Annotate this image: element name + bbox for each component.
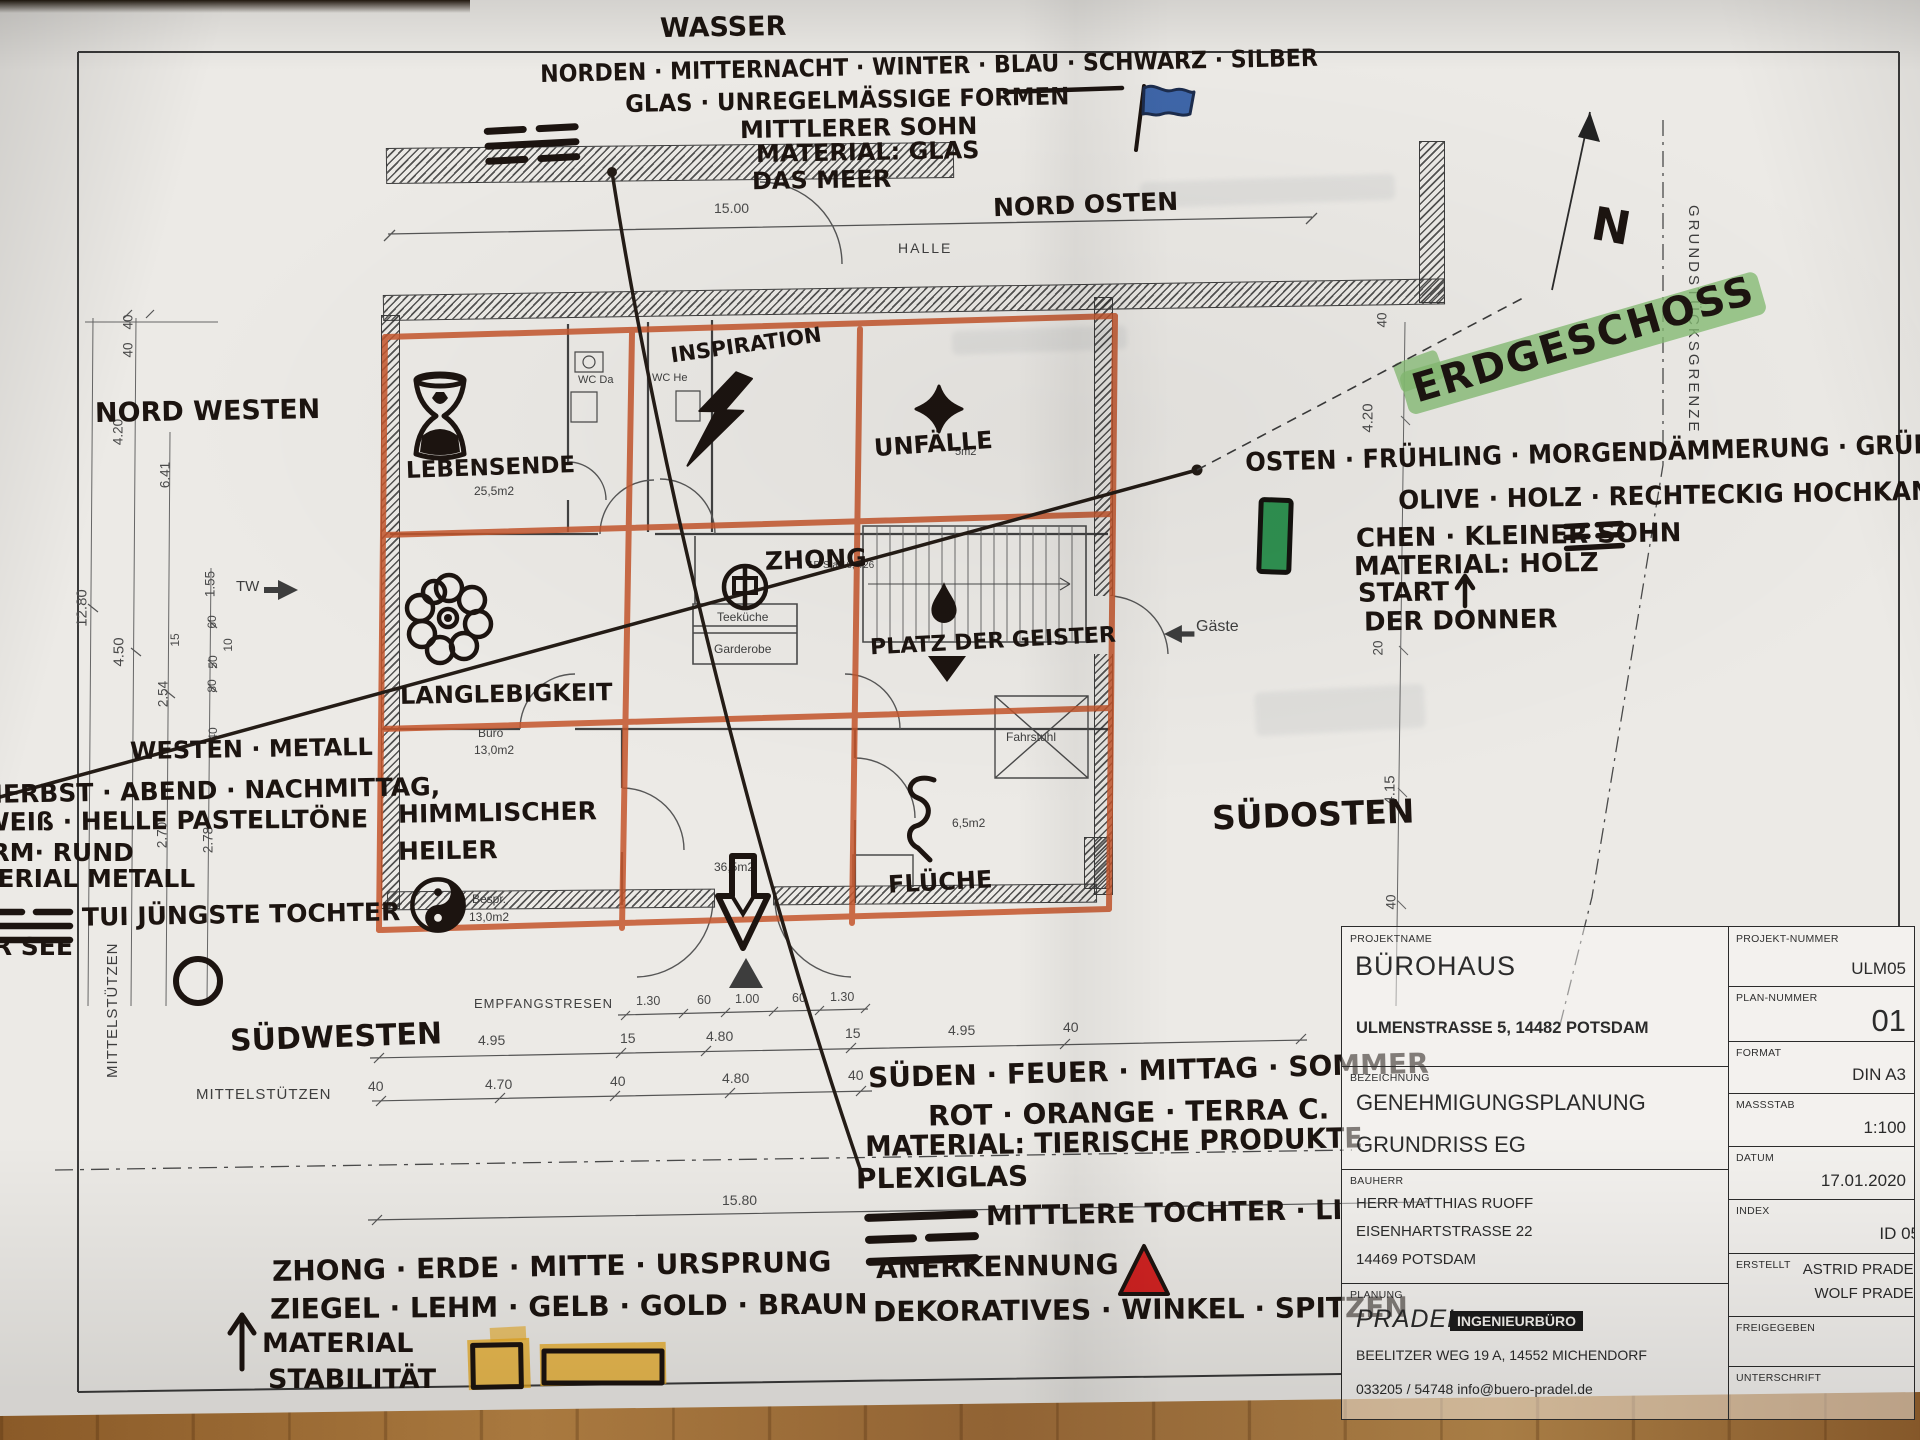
- trigram-dui-icon: [0, 906, 74, 946]
- yellow-squares-icon: [460, 1325, 675, 1400]
- room-hand-flueche: FLÜCHE: [887, 867, 993, 898]
- water-drop-icon: [928, 580, 960, 624]
- sued-osten-label: SÜDOSTEN: [1211, 794, 1415, 836]
- entry-triangle-icon: [729, 958, 763, 988]
- red-triangle-icon: [1118, 1242, 1170, 1298]
- start-arrow-icon: [1452, 568, 1478, 608]
- curse-squiggle-icon: [898, 772, 942, 864]
- row-line: [1728, 1366, 1914, 1367]
- room-hand-himmlischer: HIMMLISCHER: [398, 798, 597, 828]
- room-hand-heiler: HEILER: [398, 837, 498, 865]
- west-line5: MATERIAL METALL: [0, 866, 195, 892]
- zhong-character-icon: [720, 562, 770, 612]
- format-value: DIN A3: [1852, 1065, 1906, 1085]
- row-line: [1342, 1283, 1728, 1284]
- east-line6: DER DONNER: [1364, 606, 1558, 637]
- nord-westen-label: NORD WESTEN: [95, 396, 321, 428]
- center-line3: MATERIAL: [262, 1330, 413, 1358]
- stability-arrow-icon: [222, 1305, 262, 1371]
- circle-icon: [170, 955, 226, 1009]
- room-hand-zhong: ZHONG: [765, 545, 868, 575]
- planung-label: PLANUNG: [1350, 1289, 1403, 1301]
- sued-westen-label: SÜDWESTEN: [230, 1018, 443, 1057]
- row-line: [1728, 1146, 1914, 1147]
- erstellt-value2: WOLF PRADEL: [1814, 1285, 1915, 1302]
- bauherr-line2: EISENHARTSTRASSE 22: [1356, 1223, 1532, 1240]
- row-line: [1728, 1093, 1914, 1094]
- title-block: PROJEKTNAME BÜROHAUS ULMENSTRASSE 5, 144…: [1341, 926, 1915, 1420]
- bauherr-line3: 14469 POTSDAM: [1356, 1251, 1476, 1268]
- massstab-value: 1:100: [1863, 1118, 1906, 1138]
- plan-nummer-label: PLAN-NUMMER: [1736, 992, 1817, 1004]
- erstellt-label: ERSTELLT: [1736, 1259, 1791, 1271]
- west-line6: TUI JÜNGSTE TOCHTER: [82, 899, 401, 931]
- bezeichnung-label: BEZEICHNUNG: [1350, 1072, 1430, 1084]
- row-line: [1728, 1316, 1914, 1317]
- planung-adresse: BEELITZER WEG 19 A, 14552 MICHENDORF: [1356, 1347, 1647, 1363]
- center-line4: STABILITÄT: [268, 1366, 436, 1394]
- center-line2: ZIEGEL · LEHM · GELB · GOLD · BRAUN: [270, 1289, 868, 1324]
- projekt-nummer-label: PROJEKT-NUMMER: [1736, 933, 1839, 945]
- trigram-kan-icon: [484, 122, 580, 166]
- massstab-label: MASSSTAB: [1736, 1099, 1795, 1111]
- lightning-icon: [688, 368, 750, 472]
- hourglass-icon: [408, 368, 472, 466]
- green-rectangle-icon: [1254, 494, 1296, 578]
- row-line: [1728, 986, 1914, 987]
- bezeichnung-value2: GRUNDRISS EG: [1356, 1132, 1526, 1158]
- projekt-nummer-value: ULM05: [1851, 959, 1906, 979]
- east-line5: START: [1358, 579, 1450, 608]
- south-line5: MITTLERE TOCHTER · LI: [986, 1197, 1343, 1232]
- plan-nummer-value: 01: [1872, 1003, 1906, 1039]
- planung-name: PRADEL: [1356, 1305, 1462, 1334]
- gaeste-arrow-icon: [1164, 622, 1198, 646]
- bauherr-label: BAUHERR: [1350, 1175, 1403, 1187]
- row-line: [1342, 1169, 1728, 1170]
- west-line1: WESTEN · METALL: [130, 735, 373, 764]
- planung-kontakt: 033205 / 54748 info@buero-pradel.de: [1356, 1381, 1593, 1397]
- west-line3: WEIß · HELLE PASTELLTÖNE: [0, 806, 368, 836]
- triangle-down-icon: [926, 654, 968, 684]
- datum-value: 17.01.2020: [1821, 1171, 1906, 1191]
- bezeichnung-value1: GENEHMIGUNGSPLANUNG: [1356, 1090, 1646, 1116]
- bauherr-line1: HERR MATTHIAS RUOFF: [1356, 1195, 1533, 1212]
- adresse-value: ULMENSTRASSE 5, 14482 POTSDAM: [1356, 1019, 1649, 1038]
- row-line: [1728, 1041, 1914, 1042]
- flower-icon: [402, 566, 496, 686]
- south-line4: PLEXIGLAS: [856, 1162, 1029, 1194]
- erstellt-value1: ASTRID PRADEL: [1803, 1261, 1915, 1278]
- planung-typ-badge: INGENIEURBÜRO: [1450, 1311, 1583, 1331]
- sight-lines: [0, 167, 1523, 1180]
- trigram-zhen-icon: [1564, 520, 1624, 554]
- entrance-arrow-icon: [710, 852, 776, 956]
- tw-arrow-icon: [260, 578, 298, 602]
- freigegeben-label: FREIGEGEBEN: [1736, 1322, 1815, 1334]
- projektname-value: BÜROHAUS: [1355, 951, 1516, 982]
- yin-yang-icon: [406, 876, 470, 934]
- unterschrift-label: UNTERSCHRIFT: [1736, 1372, 1821, 1384]
- wasser-heading: WASSER: [660, 13, 787, 44]
- index-label: INDEX: [1736, 1205, 1770, 1217]
- north-line4: MATERIAL: GLAS: [756, 138, 980, 167]
- projektname-label: PROJEKTNAME: [1350, 933, 1432, 945]
- row-line: [1342, 1066, 1728, 1067]
- west-line4: FORM· RUND: [0, 840, 134, 866]
- datum-label: DATUM: [1736, 1152, 1774, 1164]
- index-value: ID 05: [1879, 1224, 1915, 1244]
- nord-osten-label: NORD OSTEN: [993, 189, 1179, 222]
- trigram-li-icon: [865, 1208, 979, 1268]
- format-label: FORMAT: [1736, 1047, 1781, 1059]
- cross-pattee-icon: [912, 380, 966, 438]
- row-line: [1728, 1199, 1914, 1200]
- blue-flag-icon: [1122, 80, 1197, 152]
- north-line5: DAS MEER: [752, 167, 892, 195]
- east-line3: CHEN · KLEINER SOHN: [1356, 520, 1682, 553]
- row-line: [1728, 1253, 1914, 1254]
- title-block-divider: [1728, 927, 1729, 1419]
